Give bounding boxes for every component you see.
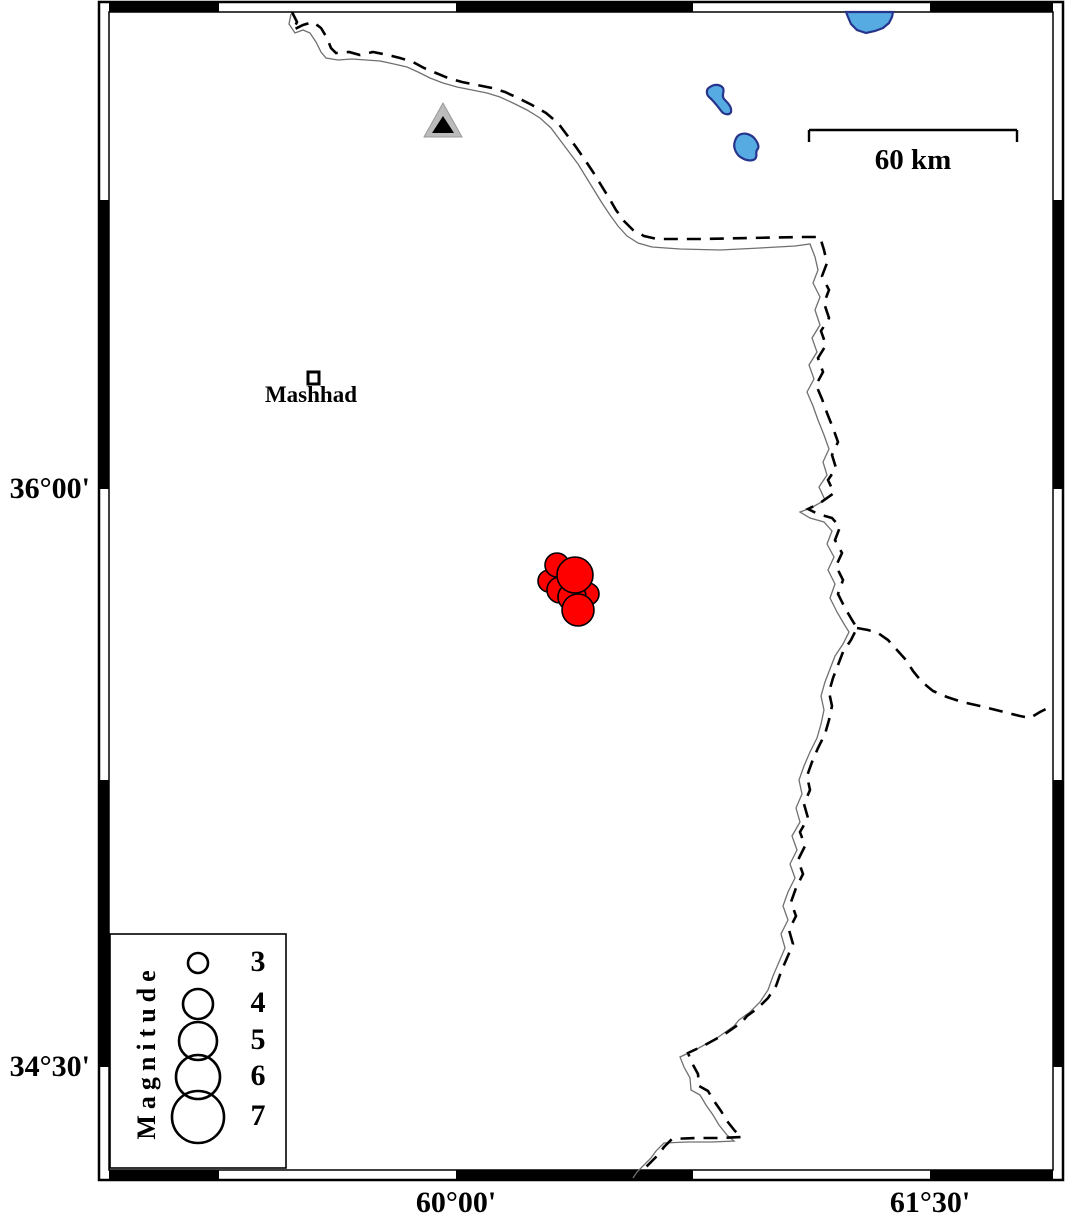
earthquake-epicenter	[557, 557, 593, 593]
border-dashed-branch	[857, 628, 1052, 718]
lake-shape	[846, 12, 893, 33]
y-axis-label-36-00: 36°00'	[0, 472, 90, 506]
frame-tick-segment	[99, 200, 109, 489]
frame-tick-segment	[456, 2, 693, 12]
frame-tick-segment	[1053, 780, 1063, 1067]
frame-tick-segment	[109, 1170, 219, 1180]
earthquake-cluster	[538, 553, 599, 626]
legend-magnitude-label: 7	[228, 1099, 288, 1133]
legend-magnitude-label: 5	[228, 1023, 288, 1057]
city-label-mashhad: Mashhad	[211, 382, 411, 408]
frame-tick-segment	[1053, 200, 1063, 489]
scale-bar-label: 60 km	[813, 144, 1013, 177]
legend-magnitude-label: 3	[228, 945, 288, 979]
map-figure: 36°00' 34°30' 60°00' 61°30' Mashhad 60 k…	[0, 0, 1066, 1219]
x-axis-label-61-30: 61°30'	[830, 1186, 1030, 1219]
legend-magnitude-label: 4	[228, 986, 288, 1020]
frame-tick-segment	[109, 2, 219, 12]
frame-tick-segment	[930, 2, 1053, 12]
frame-tick-segment	[930, 1170, 1053, 1180]
scale-bar	[809, 130, 1017, 142]
lake-shape	[734, 134, 758, 161]
lake-shape	[707, 85, 731, 114]
lakes	[707, 12, 893, 160]
frame-tick-segment	[456, 1170, 693, 1180]
frame-tick-segment	[99, 780, 109, 1067]
station-triangle-icon	[424, 103, 462, 137]
earthquake-epicenter	[562, 594, 594, 626]
x-axis-label-60-00: 60°00'	[356, 1186, 556, 1219]
legend-title-magnitude: Magnitude	[132, 932, 162, 1172]
y-axis-label-34-30: 34°30'	[0, 1050, 90, 1084]
legend-magnitude-label: 6	[228, 1059, 288, 1093]
